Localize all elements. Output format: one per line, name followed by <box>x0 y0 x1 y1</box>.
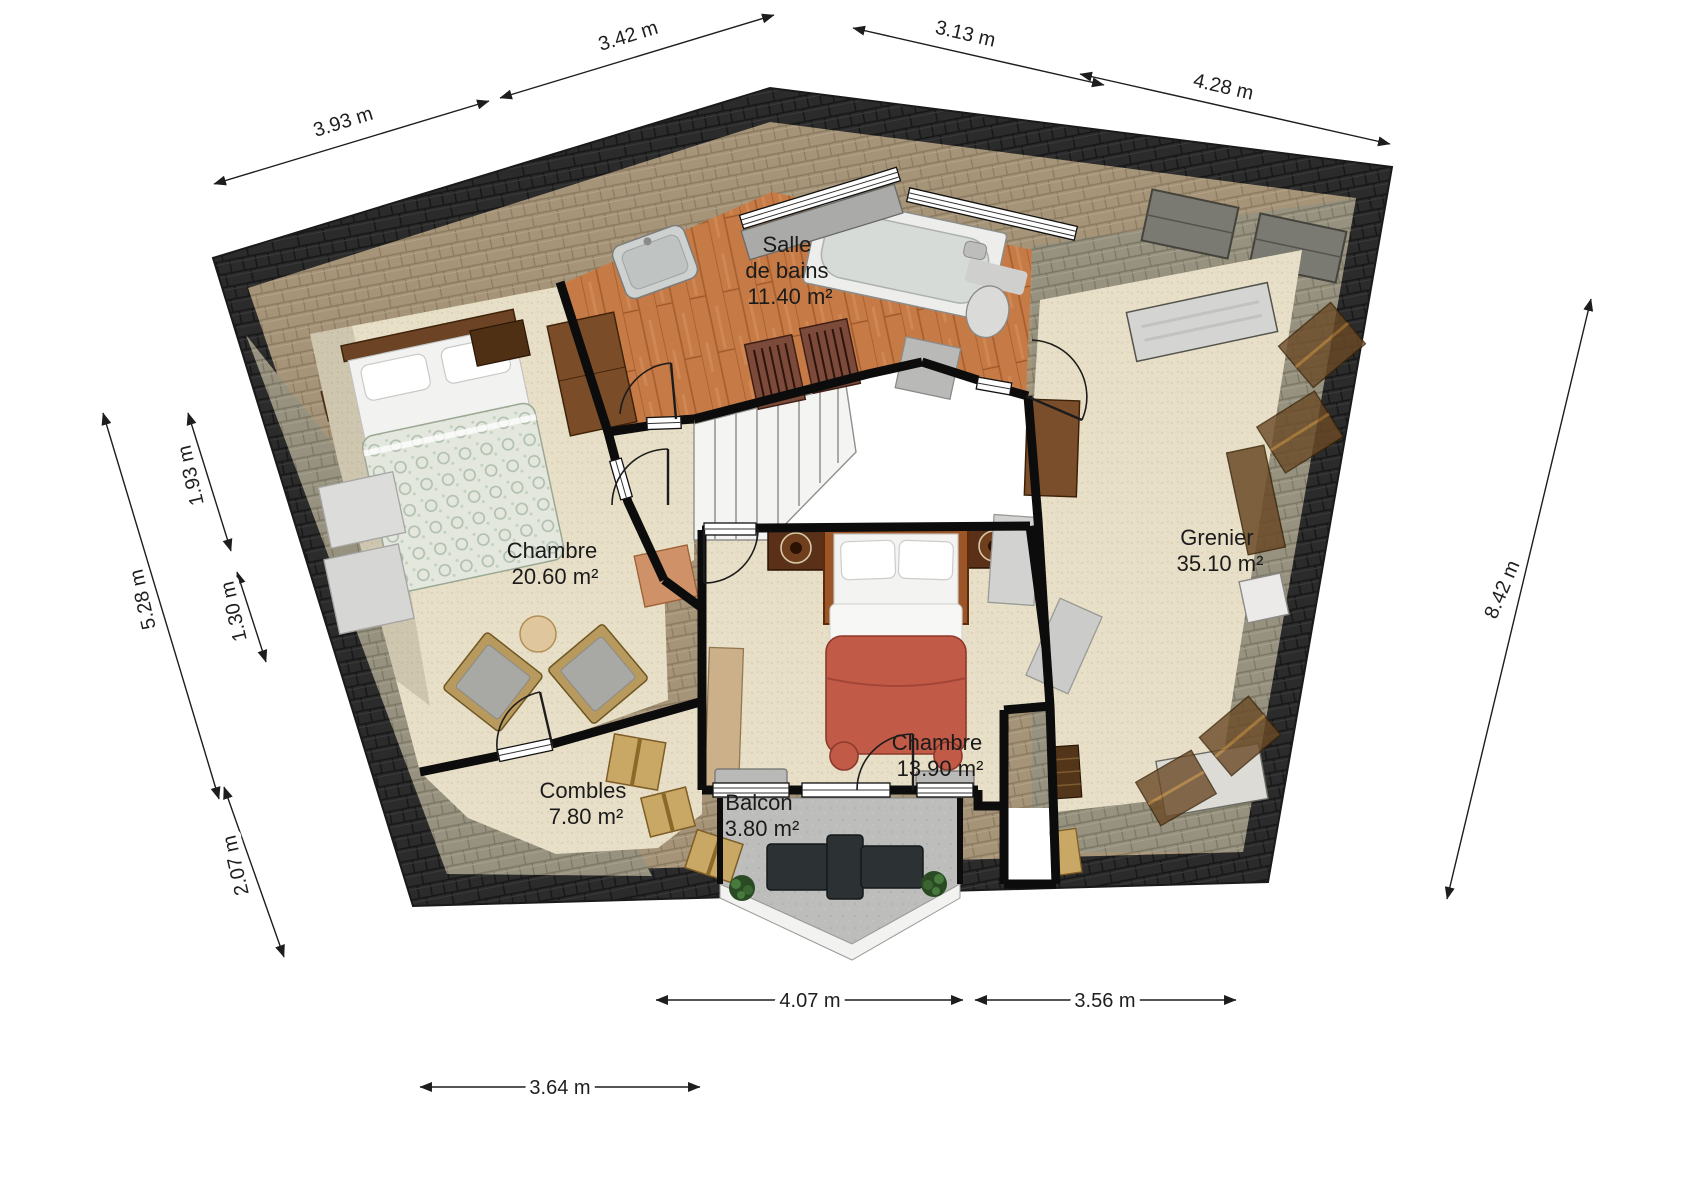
dimension-top-1: 3.93 m <box>214 101 489 184</box>
dimension-bottom-2: 3.56 m <box>975 990 1236 1012</box>
room-label-combles: Combles 7.80 m² <box>540 778 633 829</box>
svg-text:5.28 m: 5.28 m <box>126 567 161 632</box>
dimension-right-1: 8.42 m <box>1447 299 1591 899</box>
svg-text:4.28 m: 4.28 m <box>1191 70 1256 105</box>
door-threshold <box>704 523 756 535</box>
desk <box>705 647 744 788</box>
window <box>917 783 973 797</box>
dimension-left-1: 1.93 m <box>174 413 231 551</box>
door-threshold <box>802 783 890 797</box>
dimension-bottom-3: 3.64 m <box>420 1077 700 1099</box>
dimension-top-2: 3.42 m <box>500 15 774 98</box>
round-rug <box>520 616 556 652</box>
floor-plan-canvas: Salle de bains 11.40 m² Chambre 20.60 m²… <box>0 0 1696 1200</box>
svg-text:1.30 m: 1.30 m <box>217 579 252 644</box>
dimension-top-3: 3.13 m <box>853 17 1104 85</box>
floor-plan-svg: Salle de bains 11.40 m² Chambre 20.60 m²… <box>0 0 1696 1200</box>
room-label-balcon: Balcon 3.80 m² <box>725 790 800 841</box>
open-void <box>1004 808 1054 884</box>
svg-text:4.07 m: 4.07 m <box>779 990 840 1012</box>
svg-text:8.42 m: 8.42 m <box>1480 557 1524 622</box>
svg-text:3.56 m: 3.56 m <box>1074 990 1135 1012</box>
dimension-bottom-1: 4.07 m <box>656 990 963 1012</box>
svg-text:2.07 m: 2.07 m <box>219 833 254 898</box>
plant-icon <box>729 875 755 901</box>
nightstand-speaker <box>768 526 824 570</box>
room-label-grenier: Grenier 35.10 m² <box>1177 525 1264 576</box>
svg-text:3.42 m: 3.42 m <box>596 17 661 56</box>
plant-icon <box>921 871 947 897</box>
svg-text:3.13 m: 3.13 m <box>933 17 998 52</box>
room-label-chambre-1: Chambre 20.60 m² <box>507 538 604 589</box>
svg-text:3.64 m: 3.64 m <box>529 1077 590 1099</box>
dimension-left-2: 1.30 m <box>217 572 266 662</box>
room-label-chambre-2: Chambre 13.90 m² <box>892 730 989 781</box>
dimension-left-4: 2.07 m <box>219 787 284 957</box>
dimension-left-3: 5.28 m <box>103 413 219 799</box>
storage-box <box>324 544 414 634</box>
svg-text:1.93 m: 1.93 m <box>174 443 209 508</box>
white-box <box>1239 573 1289 623</box>
svg-text:3.93 m: 3.93 m <box>311 103 376 142</box>
